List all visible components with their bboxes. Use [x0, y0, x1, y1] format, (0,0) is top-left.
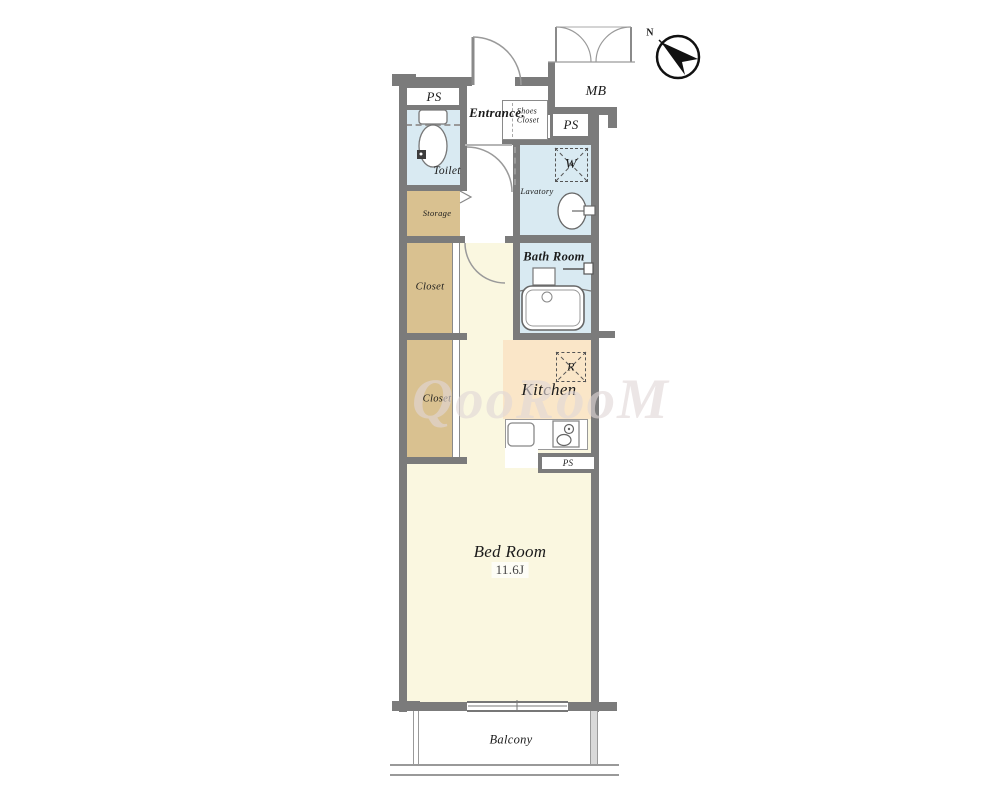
bedroom-door: [465, 243, 505, 283]
closet-upper-label: Closet: [416, 282, 445, 293]
storage-label: Storage: [423, 208, 452, 218]
bath-room-label: Bath Room: [523, 250, 584, 265]
storage-door-mark: [460, 191, 471, 203]
entrance-door: [473, 37, 521, 85]
toilet-label: Toilet: [433, 165, 461, 177]
entrance-hall-door: [467, 147, 512, 192]
bed-room-size-label: 11.6J: [492, 562, 529, 578]
kitchen-sink: [508, 423, 534, 446]
ps-mid-right-label: PS: [563, 117, 578, 133]
balcony-label: Balcony: [489, 733, 532, 748]
lavatory-label: Lavatory: [520, 186, 553, 196]
shoes-closet-label-line2: Closet: [517, 117, 539, 126]
floorplan: PS Entrance. Shoes Closet MB PS Toilet S…: [0, 0, 999, 801]
lavatory-sink: [558, 193, 595, 229]
closet-lower-label: Closet: [423, 394, 452, 405]
toilet-fixture: [417, 110, 447, 167]
ps-top-left-label: PS: [426, 89, 441, 105]
north-label: N: [646, 28, 654, 39]
ps-kitchen-label: PS: [563, 458, 574, 468]
kitchen-label: Kitchen: [522, 380, 577, 400]
north-compass-icon: [657, 36, 699, 78]
window-glass-line: [468, 700, 567, 712]
bed-room-label: Bed Room: [474, 542, 547, 562]
mb-double-doors: [548, 27, 635, 62]
refrigerator-label: R: [567, 360, 575, 375]
washer-label: W: [565, 157, 577, 173]
mb-label: MB: [586, 84, 607, 100]
bathtub: [520, 263, 593, 330]
kitchen-stove: [553, 421, 579, 447]
